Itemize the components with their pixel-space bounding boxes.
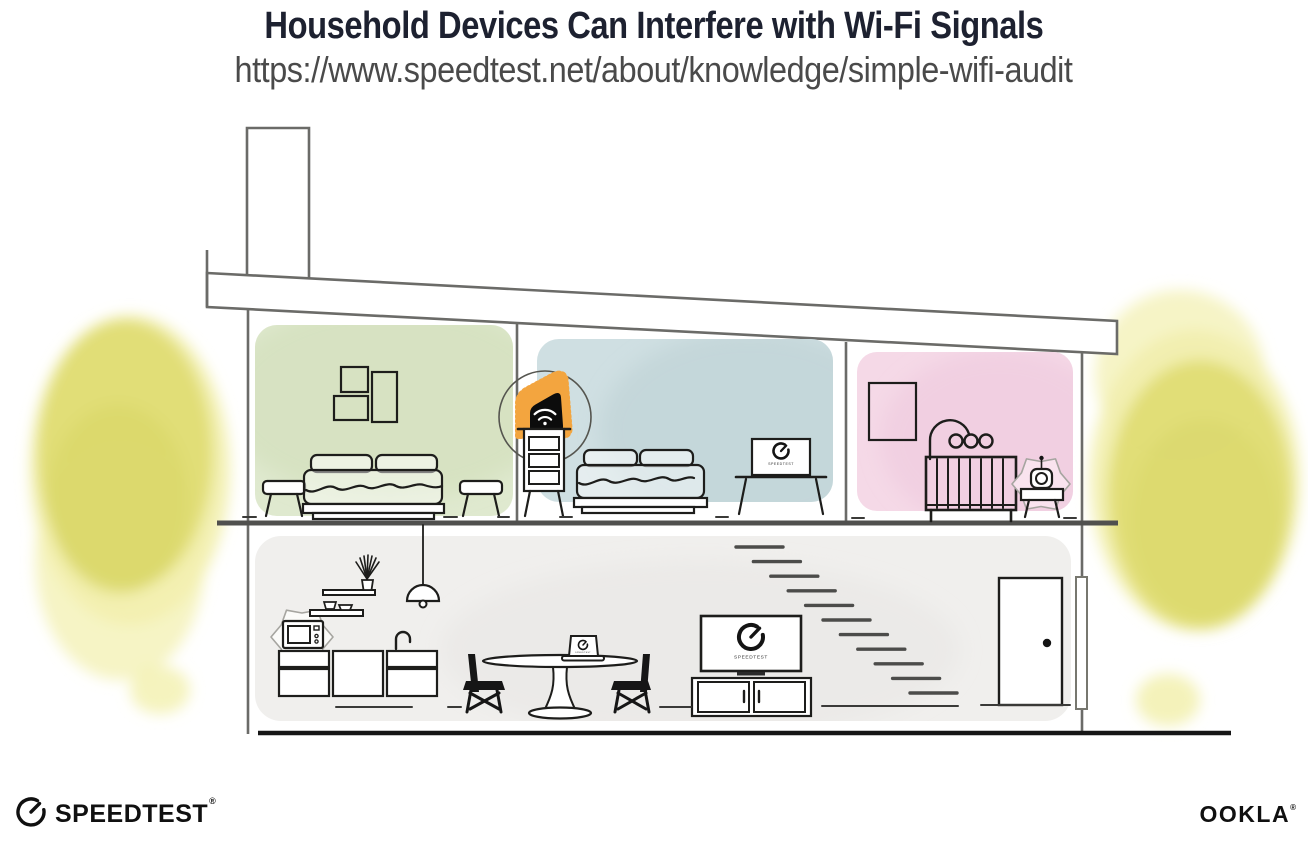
speedtest-gauge-icon bbox=[16, 795, 48, 829]
speedtest-screen-label: SPEEDTEST bbox=[768, 462, 794, 466]
microwave bbox=[283, 621, 323, 648]
media-console bbox=[692, 678, 811, 716]
bowl bbox=[339, 605, 352, 610]
bowl bbox=[324, 602, 336, 609]
door-knob bbox=[1043, 639, 1051, 647]
registered-mark: ® bbox=[1290, 803, 1296, 812]
registered-mark: ® bbox=[209, 796, 216, 806]
speedtest-logo: SPEEDTEST® bbox=[16, 795, 216, 829]
bush-right bbox=[1090, 290, 1300, 726]
entry-door bbox=[999, 578, 1062, 705]
speedtest-wordmark: SPEEDTEST® bbox=[55, 796, 216, 829]
chimney bbox=[247, 128, 309, 283]
speedtest-screen-label: SPEEDTEST bbox=[734, 655, 768, 661]
ookla-logo: OOKLA® bbox=[1200, 801, 1296, 828]
bush-left bbox=[30, 315, 230, 714]
downspout bbox=[1076, 577, 1087, 709]
wifi-router bbox=[518, 374, 570, 436]
house-illustration: SPEEDTEST bbox=[0, 0, 1308, 861]
speedtest-screen-label: SPEEDTEST bbox=[575, 652, 591, 654]
media-area: SPEEDTEST bbox=[692, 616, 811, 716]
infographic-page: Household Devices Can Interfere with Wi-… bbox=[0, 0, 1308, 861]
bed bbox=[574, 450, 707, 513]
dresser bbox=[518, 429, 570, 516]
